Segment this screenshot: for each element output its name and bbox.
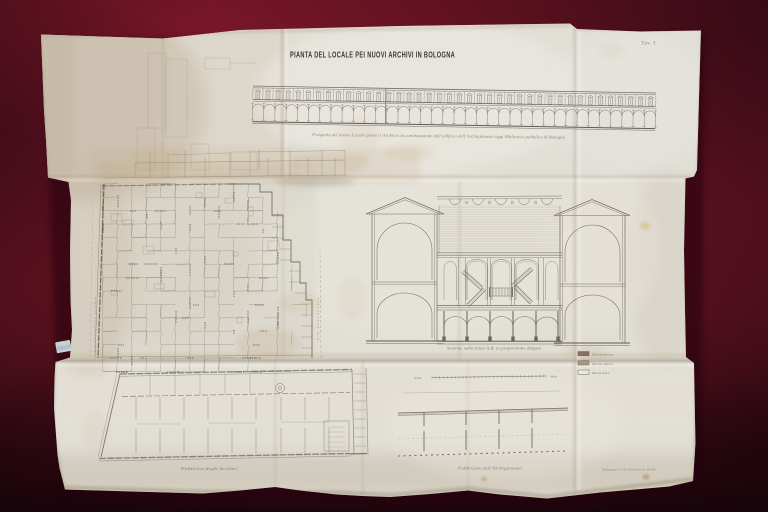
svg-text:Scala: Scala [414,376,421,380]
svg-text:PIANTA DEL LOCALE PEI NUOVI AR: PIANTA DEL LOCALE PEI NUOVI ARCHIVI IN B… [290,50,455,60]
svg-text:Bologna li 10 Novembre 1838.: Bologna li 10 Novembre 1838. [602,468,656,472]
svg-text:Fabbricato dell’Archiginnasio: Fabbricato dell’Archiginnasio [457,466,522,471]
svg-text:Via Cartoleria vecchia: Via Cartoleria vecchia [93,297,97,352]
svg-text:Fabbrica degli Scolari: Fabbrica degli Scolari [180,466,239,471]
svg-text:Tav. I.: Tav. I. [641,41,657,47]
svg-text:Muri da atterrare: Muri da atterrare [591,353,614,357]
svg-text:Muri da costruire: Muri da costruire [591,362,614,366]
svg-text:Sezione sulla linea A.B. in pr: Sezione sulla linea A.B. in proporzione … [447,346,541,351]
svg-text:Metri: Metri [549,375,557,379]
svg-text:Muri di antico: Muri di antico [591,371,610,375]
